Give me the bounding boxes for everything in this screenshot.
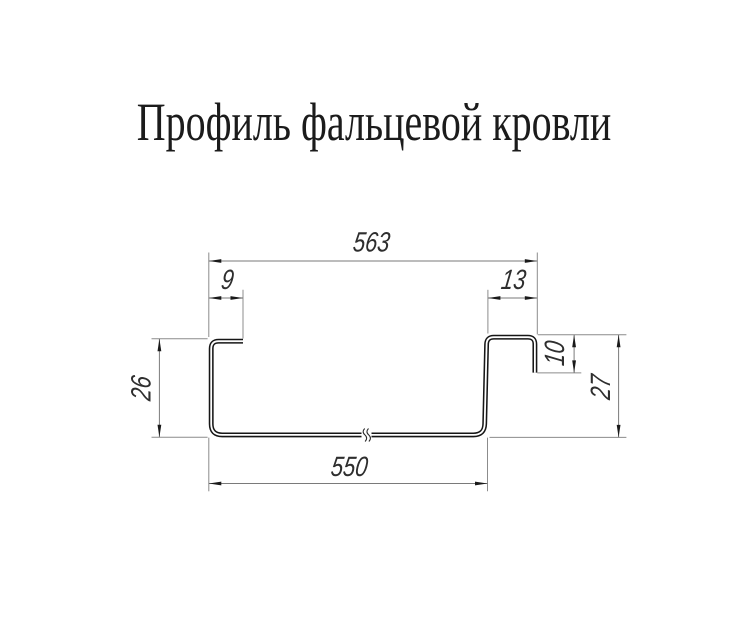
svg-text:Профиль фальцевой кровли: Профиль фальцевой кровли	[137, 93, 611, 152]
svg-text:26: 26	[126, 373, 157, 403]
svg-text:13: 13	[499, 264, 528, 295]
svg-text:563: 563	[351, 227, 392, 258]
svg-text:27: 27	[586, 372, 617, 402]
svg-text:550: 550	[329, 452, 370, 483]
svg-text:10: 10	[540, 339, 571, 368]
